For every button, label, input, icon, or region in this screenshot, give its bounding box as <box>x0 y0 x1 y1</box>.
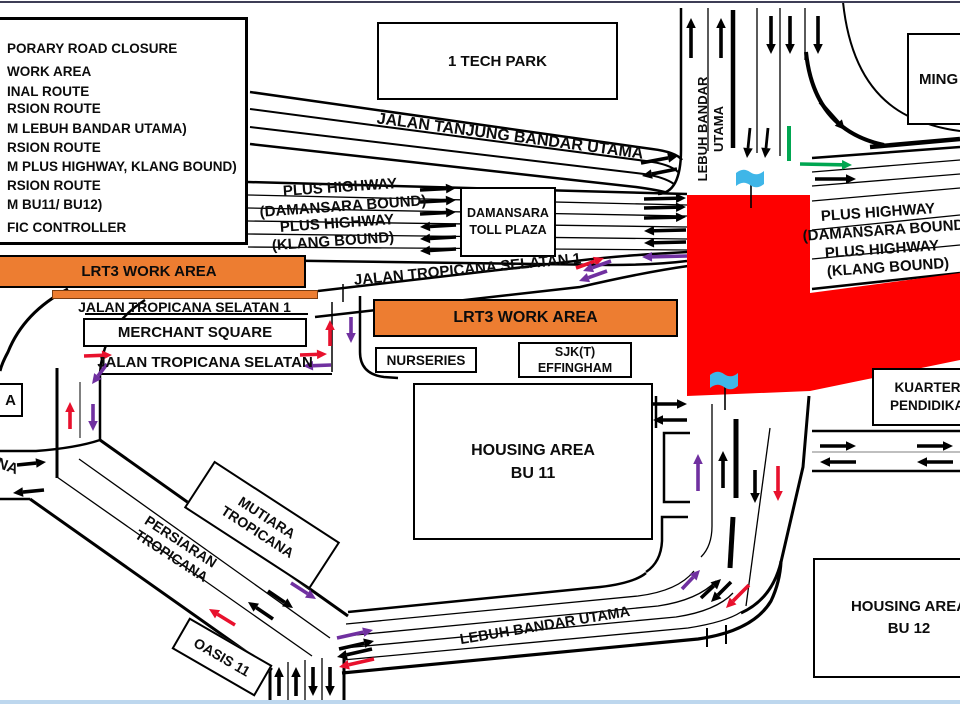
route-arrow-head-purple <box>579 273 590 282</box>
traffic-diversion-map: PORARY ROAD CLOSURE WORK AREA INAL ROUTE… <box>0 0 960 720</box>
route-arrow-black <box>420 189 446 190</box>
route-arrow-head-black <box>36 458 46 468</box>
route-arrow-black <box>748 128 750 148</box>
toll-plaza-line1: DAMANSARA <box>467 205 549 222</box>
route-arrow-head-red <box>65 402 75 412</box>
route-arrow-head-black <box>446 196 456 206</box>
road-label-jalan-tropicana-selatan: JALAN TROPICANA SELATAN <box>85 354 325 371</box>
route-arrow-black <box>268 591 285 602</box>
route-arrow-purple <box>588 271 607 278</box>
route-arrow-head-purple <box>88 421 98 431</box>
route-arrow-head-black <box>820 457 830 467</box>
route-arrow-head-black <box>325 686 335 696</box>
route-arrow-head-black <box>676 202 686 212</box>
legend-item-road-closure: PORARY ROAD CLOSURE <box>7 41 177 56</box>
route-arrow-head-black <box>13 487 23 497</box>
route-arrow-head-black <box>677 399 687 409</box>
kuarters-line1: KUARTERS <box>894 379 960 397</box>
lrt3-work-area-label: LRT3 WORK AREA <box>81 263 216 280</box>
toll-plaza-line2: TOLL PLAZA <box>469 222 546 239</box>
route-arrow-head-black <box>743 148 753 158</box>
route-arrow-head-black <box>274 667 284 677</box>
legend-item-diversion-2b: M PLUS HIGHWAY, KLANG BOUND) <box>7 159 237 174</box>
damansara-toll-plaza-box: DAMANSARA TOLL PLAZA <box>460 187 556 257</box>
route-arrow-head-black <box>676 212 686 222</box>
route-arrow-head-black <box>785 44 795 54</box>
route-arrow-head-black <box>813 44 823 54</box>
bu12-line2: BU 12 <box>888 618 931 640</box>
lrt3-work-area-central: LRT3 WORK AREA <box>373 299 678 337</box>
lrt3-work-area-label: LRT3 WORK AREA <box>453 309 597 327</box>
kuarters-line2: PENDIDIKAN <box>890 397 960 415</box>
route-arrow-head-black <box>420 246 430 256</box>
route-arrow-black <box>644 207 676 208</box>
route-arrow-black <box>347 649 372 655</box>
tech-park-box: 1 TECH PARK <box>377 22 618 100</box>
traffic-controller-flag-icon <box>736 170 764 188</box>
housing-area-bu12-box: HOUSING AREA BU 12 <box>813 558 960 678</box>
route-arrow-red <box>218 614 235 625</box>
merchant-square-label: MERCHANT SQUARE <box>118 324 272 341</box>
legend-item-diversion-1: RSION ROUTE <box>7 101 101 116</box>
route-arrow-black <box>644 198 676 199</box>
sjkt-effingham-box: SJK(T) EFFINGHAM <box>518 342 632 378</box>
route-arrow-black <box>420 213 446 214</box>
route-arrow-head-black <box>446 208 456 218</box>
route-arrow-black <box>23 490 44 492</box>
route-arrow-head-purple <box>362 627 373 636</box>
nurseries-label: NURSERIES <box>387 353 466 368</box>
route-arrow-head-purple <box>346 333 356 343</box>
route-arrow-black <box>256 608 273 619</box>
route-arrow-black <box>430 249 456 250</box>
route-arrow-black <box>652 169 677 174</box>
route-arrow-head-black <box>750 493 760 503</box>
route-arrow-head-red <box>773 491 783 501</box>
legend-box: PORARY ROAD CLOSURE WORK AREA INAL ROUTE… <box>0 17 248 245</box>
route-arrow-head-black <box>291 667 301 677</box>
route-arrow-purple <box>682 577 693 589</box>
sjkt-line1: SJK(T) <box>555 344 595 360</box>
route-arrow-head-purple <box>693 454 703 464</box>
road-label-jts1-horizontal: JALAN TROPICANA SELATAN 1 <box>62 299 307 315</box>
route-arrow-black <box>654 242 686 243</box>
route-arrow-head-black <box>846 441 856 451</box>
route-arrow-black <box>766 128 768 148</box>
route-arrow-black <box>718 582 731 595</box>
housing-area-bu11-box: HOUSING AREA BU 11 <box>413 383 653 540</box>
ming-label: MING <box>919 71 958 88</box>
route-arrow-head-black <box>644 226 654 236</box>
route-arrow-black <box>430 237 456 238</box>
legend-item-work-area: WORK AREA <box>7 64 91 79</box>
route-arrow-head-black <box>420 234 430 244</box>
legend-item-diversion-3: RSION ROUTE <box>7 178 101 193</box>
legend-item-traffic-controller: FIC CONTROLLER <box>7 220 126 235</box>
legend-item-diversion-3b: M BU11/ BU12) <box>7 197 102 212</box>
route-arrow-purple <box>652 256 687 257</box>
route-arrow-head-black <box>766 44 776 54</box>
tech-park-label: 1 TECH PARK <box>448 53 547 70</box>
slide-top-border <box>0 1 960 3</box>
route-arrow-green <box>800 164 842 165</box>
route-arrow-head-black <box>686 18 696 28</box>
route-arrow-black <box>654 230 686 231</box>
route-arrow-head-black <box>644 238 654 248</box>
kuarters-pendidikan-box: KUARTERS PENDIDIKAN <box>872 368 960 426</box>
nurseries-box: NURSERIES <box>375 347 477 373</box>
route-arrow-head-black <box>718 451 728 461</box>
lebuh-bandar-line1: LEBUH BANDAR <box>695 64 711 194</box>
lrt3-work-area-strip <box>52 290 318 299</box>
route-arrow-black <box>820 102 838 123</box>
route-arrow-head-black <box>337 650 348 659</box>
bu11-line1: HOUSING AREA <box>471 439 595 462</box>
edge-box-a: A <box>0 383 23 417</box>
route-arrow-head-black <box>653 415 663 425</box>
route-arrow-head-black <box>917 457 927 467</box>
bu12-line1: HOUSING AREA <box>851 596 960 618</box>
legend-item-original-route: INAL ROUTE <box>7 84 89 99</box>
lrt3-work-area-west: LRT3 WORK AREA <box>0 255 306 288</box>
lebuh-bandar-line2: UTAMA <box>711 64 727 194</box>
legend-item-diversion-2: RSION ROUTE <box>7 140 101 155</box>
bu11-line2: BU 11 <box>511 462 555 485</box>
route-arrow-head-green <box>842 160 852 170</box>
slide-bottom-border <box>0 700 960 704</box>
edge-box-a-label: A <box>5 392 16 409</box>
route-arrow-black <box>430 225 456 226</box>
route-arrow-head-black <box>943 441 953 451</box>
route-arrow-black <box>644 217 676 218</box>
legend-item-diversion-1b: M LEBUH BANDAR UTAMA) <box>7 121 187 136</box>
merchant-square-box: MERCHANT SQUARE <box>83 318 307 347</box>
ming-box: MING <box>907 33 960 125</box>
route-arrow-red <box>349 659 374 665</box>
sjkt-line2: EFFINGHAM <box>538 360 612 376</box>
route-arrow-head-black <box>761 148 771 158</box>
road-label-lebuh-bandar-utama-vertical: LEBUH BANDAR UTAMA <box>695 64 727 194</box>
route-arrow-head-black <box>446 184 456 194</box>
route-arrow-head-black <box>716 18 726 28</box>
route-arrow-head-red <box>325 320 335 330</box>
route-arrow-head-black <box>308 686 318 696</box>
